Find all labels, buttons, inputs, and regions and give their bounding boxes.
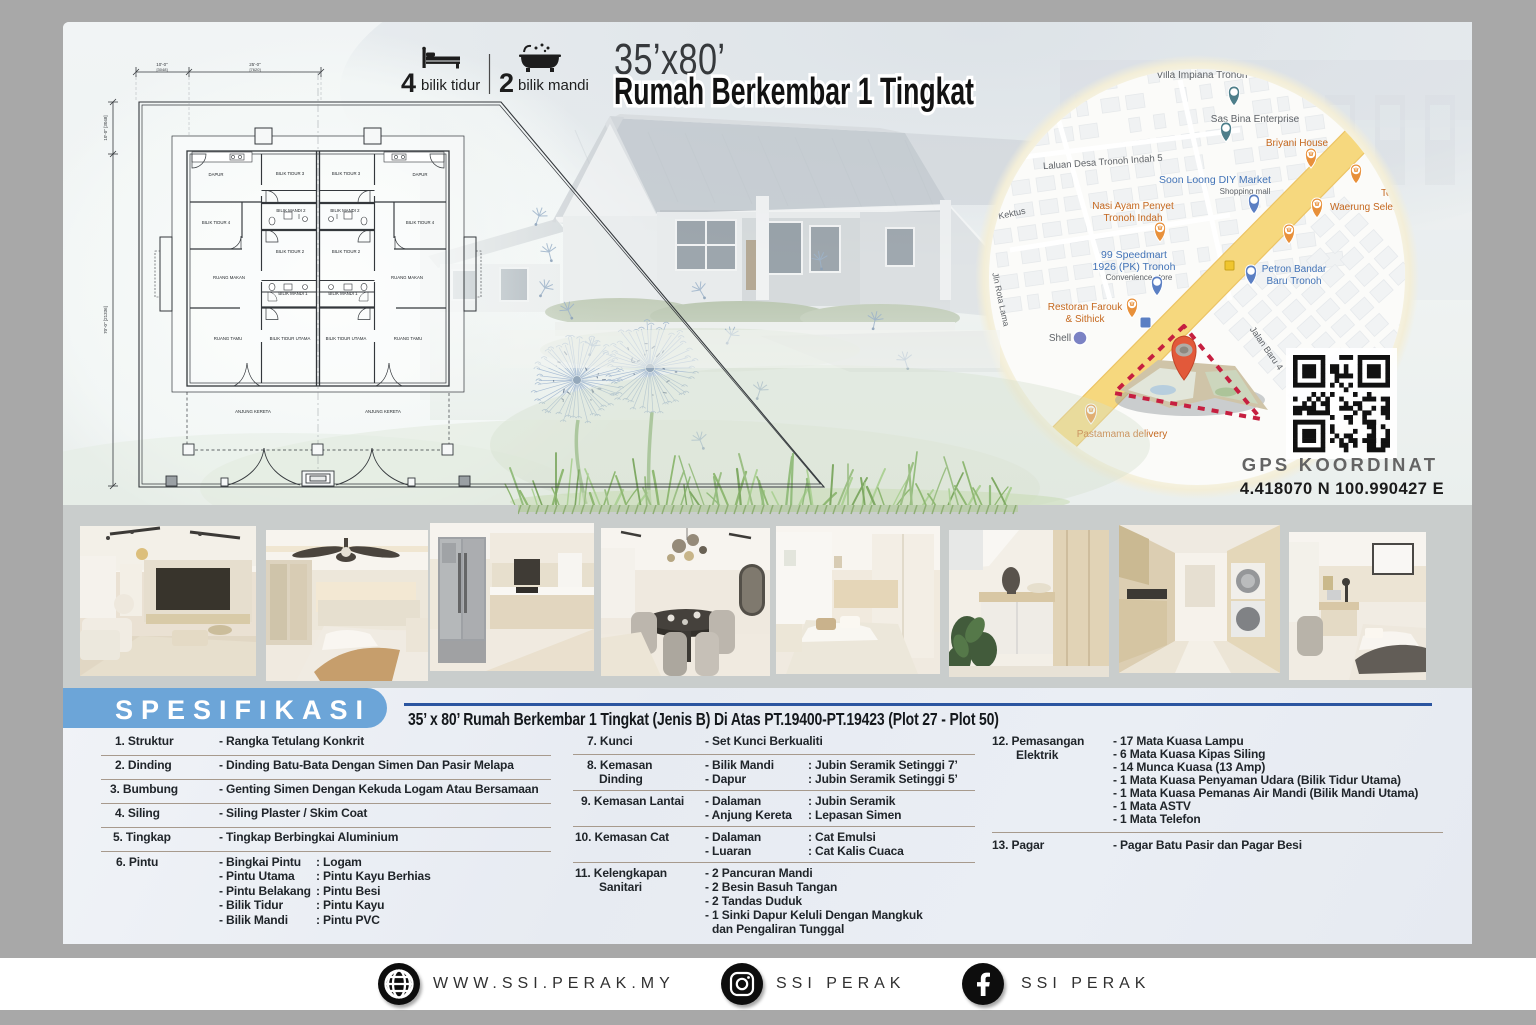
svg-text:Rumah Berkembar 1 Tingkat: Rumah Berkembar 1 Tingkat xyxy=(614,69,974,112)
svg-text:BILIK TIDUR 2: BILIK TIDUR 2 xyxy=(332,249,361,254)
svg-text:DAPUR: DAPUR xyxy=(208,172,223,177)
svg-text:RUANG TAMU: RUANG TAMU xyxy=(394,336,423,341)
svg-text:Soon Loong DIY Market: Soon Loong DIY Market xyxy=(1159,174,1271,186)
svg-text:RUANG MAKAN: RUANG MAKAN xyxy=(391,275,423,280)
svg-text:ANJUNG KERETA: ANJUNG KERETA xyxy=(235,409,271,414)
svg-text:BILIK TIDUR 3: BILIK TIDUR 3 xyxy=(276,171,305,176)
svg-text:Restoran Farouk: Restoran Farouk xyxy=(1048,302,1123,313)
svg-text:BILIK TIDUR UTAMA: BILIK TIDUR UTAMA xyxy=(326,336,367,341)
svg-text:2: 2 xyxy=(499,68,514,98)
svg-text:BILIK TIDUR 3: BILIK TIDUR 3 xyxy=(332,171,361,176)
svg-text:RUANG TAMU: RUANG TAMU xyxy=(214,336,243,341)
svg-text:10'-0" [3048]: 10'-0" [3048] xyxy=(103,115,108,140)
svg-text:4.418070 N 100.990427 E: 4.418070 N 100.990427 E xyxy=(1240,480,1444,498)
svg-text:Briyani House: Briyani House xyxy=(1266,138,1329,149)
svg-text:BILIK TIDUR UTAMA: BILIK TIDUR UTAMA xyxy=(270,336,311,341)
svg-text:4: 4 xyxy=(401,68,416,98)
svg-text:[7620]: [7620] xyxy=(249,67,260,72)
svg-text:BILIK MANDI 2: BILIK MANDI 2 xyxy=(276,208,306,213)
svg-text:RUANG MAKAN: RUANG MAKAN xyxy=(213,275,245,280)
svg-text:Tronoh Indah: Tronoh Indah xyxy=(1103,213,1162,224)
svg-text:ANJUNG KERETA: ANJUNG KERETA xyxy=(365,409,401,414)
svg-text:BILIK TIDUR 4: BILIK TIDUR 4 xyxy=(406,220,435,225)
svg-text:BILIK MANDI 2: BILIK MANDI 2 xyxy=(330,208,360,213)
svg-text:Shell: Shell xyxy=(1049,333,1071,344)
svg-text:[3048]: [3048] xyxy=(156,67,167,72)
svg-text:GPS KOORDINAT: GPS KOORDINAT xyxy=(1242,454,1438,475)
svg-text:BILIK TIDUR 2: BILIK TIDUR 2 xyxy=(276,249,305,254)
svg-text:70'-0" [21336]: 70'-0" [21336] xyxy=(103,306,108,334)
svg-text:Shopping mall: Shopping mall xyxy=(1220,187,1271,196)
svg-text:BILIK MANDI 1: BILIK MANDI 1 xyxy=(278,291,308,296)
svg-text:99 Speedmart: 99 Speedmart xyxy=(1101,249,1167,261)
svg-text:Baru Tronoh: Baru Tronoh xyxy=(1266,276,1321,287)
svg-text:BILIK MANDI 1: BILIK MANDI 1 xyxy=(328,291,358,296)
svg-text:1926 (PK) Tronoh: 1926 (PK) Tronoh xyxy=(1093,261,1176,273)
svg-text:bilik mandi: bilik mandi xyxy=(518,77,589,94)
svg-text:DAPUR: DAPUR xyxy=(412,172,427,177)
svg-text:BILIK TIDUR 4: BILIK TIDUR 4 xyxy=(202,220,231,225)
svg-text:Nasi Ayam Penyet: Nasi Ayam Penyet xyxy=(1092,201,1174,212)
svg-text:& Sithick: & Sithick xyxy=(1066,314,1106,325)
svg-text:bilik tidur: bilik tidur xyxy=(421,77,480,94)
svg-text:Petron Bandar: Petron Bandar xyxy=(1262,264,1327,275)
